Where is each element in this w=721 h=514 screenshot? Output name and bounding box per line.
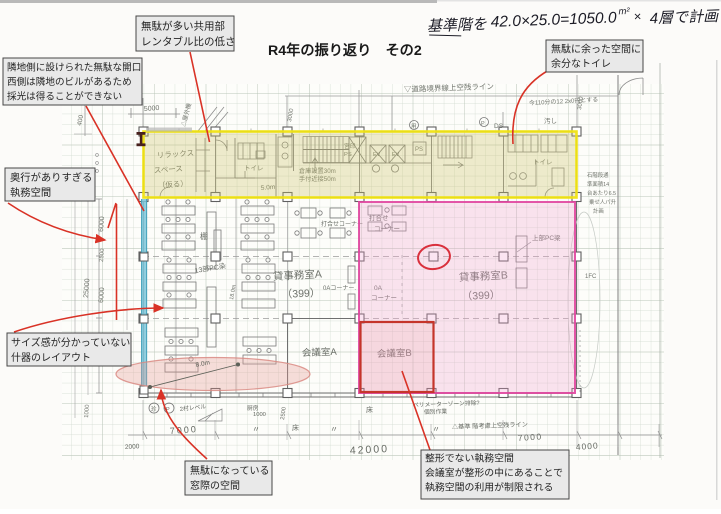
svg-text:7000: 7000 bbox=[169, 424, 198, 436]
svg-text:什器のレイアウト: 什器のレイアウト bbox=[11, 352, 91, 364]
svg-text:1000: 1000 bbox=[84, 404, 91, 418]
svg-text:床: 床 bbox=[366, 405, 373, 414]
svg-text:5000: 5000 bbox=[144, 105, 160, 113]
svg-text:執務空間: 執務空間 bbox=[10, 186, 51, 199]
svg-text:1FC: 1FC bbox=[585, 274, 597, 280]
svg-text:P: P bbox=[481, 121, 485, 127]
svg-text:計画: 計画 bbox=[593, 207, 604, 215]
svg-text:6000: 6000 bbox=[98, 287, 106, 303]
svg-text:準面積14: 準面積14 bbox=[587, 180, 609, 188]
svg-text:採光は得ることができない: 採光は得ることができない bbox=[7, 91, 122, 103]
svg-text:会議室A: 会議室A bbox=[302, 346, 338, 359]
svg-text:棚: 棚 bbox=[200, 231, 208, 241]
svg-text:厨房: 厨房 bbox=[247, 404, 259, 412]
svg-text:1000: 1000 bbox=[253, 412, 266, 418]
svg-text:石階段通: 石階段通 bbox=[587, 171, 609, 179]
svg-text:基準階を: 基準階を bbox=[427, 16, 488, 35]
svg-text:〃: 〃 bbox=[252, 425, 260, 434]
svg-text:m²: m² bbox=[618, 6, 630, 17]
svg-text:貸事務室A: 貸事務室A bbox=[272, 267, 322, 283]
svg-text:奥行がありすぎる: 奥行がありすぎる bbox=[10, 171, 92, 184]
svg-text:無駄に余った空間に: 無駄に余った空間に bbox=[551, 43, 641, 56]
svg-text:2000: 2000 bbox=[125, 443, 140, 451]
svg-text:打合せコーナー: 打合せコーナー bbox=[321, 220, 363, 228]
svg-text:DS: DS bbox=[494, 123, 504, 130]
svg-text:余分なトイレ: 余分なトイレ bbox=[551, 57, 611, 70]
svg-text:25000: 25000 bbox=[83, 278, 91, 298]
svg-text:〃: 〃 bbox=[432, 425, 440, 434]
svg-text:会議室が整形の中にあることで: 会議室が整形の中にあることで bbox=[425, 466, 563, 479]
svg-text:床: 床 bbox=[292, 423, 299, 432]
svg-text:〃: 〃 bbox=[330, 425, 338, 434]
svg-text:（399）: （399） bbox=[282, 287, 321, 301]
svg-text:2500: 2500 bbox=[99, 248, 106, 262]
svg-text:×: × bbox=[633, 9, 641, 24]
svg-text:4層で計画: 4層で計画 bbox=[649, 8, 720, 27]
svg-text:汚し: 汚し bbox=[544, 117, 557, 125]
svg-text:執務空間の利用が制限される: 執務空間の利用が制限される bbox=[425, 481, 553, 494]
svg-text:用: 用 bbox=[411, 123, 417, 130]
svg-text:乗せ人パ升: 乗せ人パ升 bbox=[589, 198, 617, 206]
svg-text:42000: 42000 bbox=[350, 443, 390, 457]
svg-text:レンタブル比の低さ: レンタブル比の低さ bbox=[141, 35, 236, 48]
svg-text:R4年の振り返り その2: R4年の振り返り その2 bbox=[268, 42, 422, 59]
svg-text:4000: 4000 bbox=[575, 440, 599, 452]
svg-text:7000: 7000 bbox=[517, 431, 543, 443]
svg-text:珍: 珍 bbox=[151, 405, 157, 413]
svg-text:無駄になっている: 無駄になっている bbox=[190, 464, 270, 477]
svg-text:台あたり6.5: 台あたり6.5 bbox=[587, 189, 616, 197]
svg-text:隣地側に設けられた無駄な開口: 隣地側に設けられた無駄な開口 bbox=[7, 62, 141, 74]
svg-text:サイズ感が分かっていない: サイズ感が分かっていない bbox=[11, 336, 130, 349]
svg-text:0Aコーナー.: 0Aコーナー. bbox=[323, 285, 356, 292]
svg-text:無駄が多い共用部: 無駄が多い共用部 bbox=[141, 20, 225, 33]
svg-text:西側は隣地のビルがあるため: 西側は隣地のビルがあるため bbox=[7, 76, 132, 88]
svg-text:窓際の空間: 窓際の空間 bbox=[190, 479, 240, 492]
svg-text:6000: 6000 bbox=[98, 216, 106, 232]
svg-text:整形でない執務空間: 整形でない執務空間 bbox=[425, 452, 514, 465]
